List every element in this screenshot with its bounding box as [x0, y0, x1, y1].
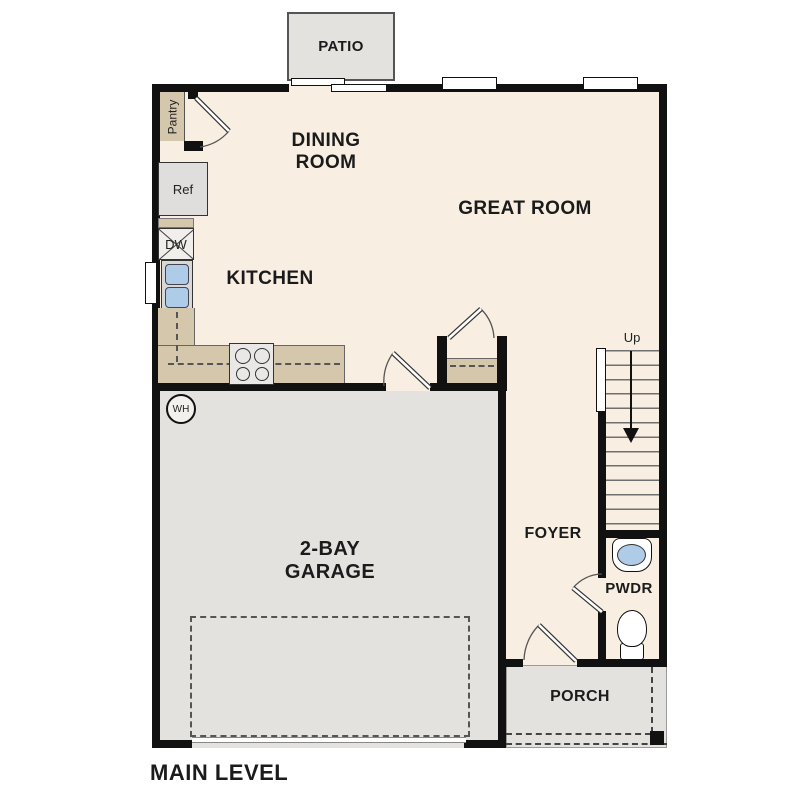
pantry-label: Pantry: [165, 99, 179, 134]
closet-dash-line: [450, 365, 494, 367]
stair-rail: [596, 348, 606, 412]
sliding-door-panel-inner: [331, 84, 387, 92]
garage-door-threshold: [192, 737, 466, 743]
dishwasher-label: DW: [159, 237, 193, 252]
pantry-jamb-top: [188, 84, 198, 99]
porch-dash-horizontal-outer: [506, 743, 667, 745]
stair-arrow-line: [630, 351, 632, 428]
stove-burner: [236, 367, 250, 381]
counter-dash-line-vertical: [176, 312, 178, 362]
closet-jamb-left: [437, 336, 447, 388]
sink-basin-bottom: [165, 287, 189, 308]
closet-shelf: [447, 358, 497, 383]
wall-porch-left: [498, 659, 506, 748]
wall-pwdr-upper: [598, 538, 606, 578]
pantry-jamb-bottom: [184, 141, 203, 151]
closet-jamb-right: [497, 336, 507, 388]
wall-front-right: [577, 659, 667, 667]
dishwasher: DW: [158, 228, 194, 260]
porch-dash-vertical: [651, 667, 653, 733]
stair-arrow-head: [623, 428, 639, 443]
wall-pwdr-lower: [598, 611, 606, 667]
stove-burner: [255, 367, 269, 381]
pwdr-sink: [612, 538, 652, 572]
porch-post: [650, 731, 664, 745]
refrigerator-label: Ref: [173, 182, 193, 197]
water-heater: WH: [166, 394, 196, 424]
porch-dash-horizontal: [506, 733, 651, 735]
stove: [229, 343, 274, 385]
wall-garage-right: [498, 383, 506, 663]
porch-label: PORCH: [539, 688, 621, 707]
up-label: Up: [614, 330, 650, 345]
stove-burner: [235, 348, 251, 364]
great-room-window-right: [583, 77, 638, 90]
great-room-label: GREAT ROOM: [430, 198, 620, 220]
kitchen-label: KITCHEN: [210, 268, 330, 290]
patio-label: PATIO: [318, 38, 364, 55]
dining-room-label: DINING ROOM: [246, 130, 406, 174]
floor-plan: PATIO Pantry Ref DW: [0, 0, 810, 810]
wall-garage-bottom-right: [464, 740, 506, 748]
garage-door-dashed: [190, 616, 470, 737]
great-room-window-left: [442, 77, 497, 90]
water-heater-label: WH: [173, 404, 190, 415]
pwdr-label: PWDR: [597, 580, 661, 597]
stove-burner: [254, 348, 270, 364]
patio-area: PATIO: [287, 12, 395, 81]
refrigerator: Ref: [158, 162, 208, 216]
pwdr-sink-basin: [617, 544, 646, 566]
kitchen-window: [145, 262, 157, 304]
garage-label: 2-BAY GARAGE: [230, 538, 430, 584]
pantry-closet: Pantry: [160, 92, 185, 141]
sink-basin-top: [165, 264, 189, 285]
toilet-bowl: [617, 610, 647, 647]
wall-under-stairs: [598, 530, 667, 538]
plan-title: MAIN LEVEL: [150, 760, 390, 786]
foyer-label: FOYER: [512, 525, 594, 544]
wall-stairs-left: [598, 411, 606, 538]
kitchen-sink: [161, 260, 193, 310]
wall-garage-bottom-left: [152, 740, 192, 748]
counter-strip: [158, 218, 194, 228]
